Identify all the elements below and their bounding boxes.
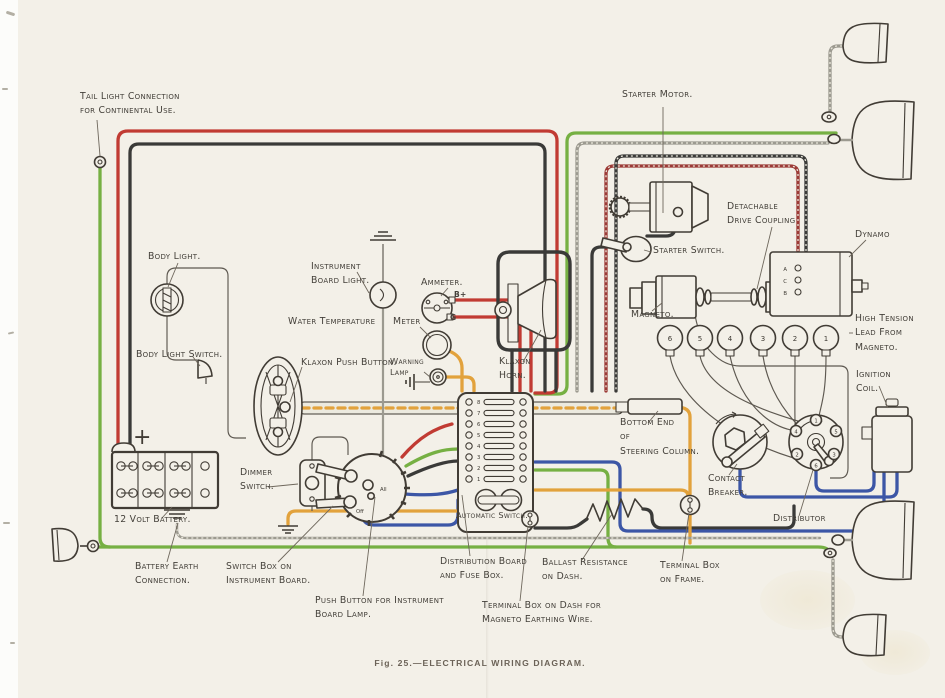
figure-caption: Fig. 25.—ELECTRICAL WIRING DIAGRAM. xyxy=(300,658,660,668)
dynamo-terminal-c: C xyxy=(783,279,787,285)
label-starter-switch: Starter Switch. xyxy=(653,244,725,258)
plug-number: 5 xyxy=(698,335,702,343)
headlamp-top-small xyxy=(843,23,888,63)
label-starter-motor: Starter Motor. xyxy=(622,88,693,102)
label-ballast-resistance: Ballast Resistance on Dash. xyxy=(542,556,628,585)
label-distributor: Distributor xyxy=(773,512,826,526)
headlamp-bottom-small xyxy=(843,614,886,655)
label-switch-box: Switch Box on Instrument Board. xyxy=(226,560,310,589)
fuse-number: 1 xyxy=(477,477,480,483)
label-ignition-coil: Ignition Coil. xyxy=(856,368,891,397)
body-light-switch xyxy=(198,360,212,384)
label-contact-breaker: Contact Breaker. xyxy=(708,472,748,501)
dynamo-terminal-a: A xyxy=(783,267,787,273)
label-meter: Meter xyxy=(393,315,421,329)
distributor-terminal: 1 xyxy=(814,419,817,425)
steering-wheel xyxy=(254,357,302,455)
distributor: 1 5 3 6 2 4 xyxy=(789,415,843,471)
body-light xyxy=(151,284,183,316)
plug-number: 6 xyxy=(668,335,673,343)
label-terminal-box-frame: Terminal Box on Frame. xyxy=(660,559,720,588)
label-ammeter-terminal-g: G xyxy=(450,312,456,324)
distributor-terminal: 2 xyxy=(795,453,798,459)
switch-box: All Off xyxy=(316,451,410,526)
label-bottom-end-steering-column: Bottom End of Steering Column. xyxy=(620,416,699,459)
starter-switch xyxy=(601,237,651,262)
label-push-button: Push Button for Instrument Board Lamp. xyxy=(315,594,444,623)
warning-lamp xyxy=(430,369,446,385)
distributor-terminal: 5 xyxy=(834,430,837,436)
label-detachable-drive-coupling: Detachable Drive Coupling xyxy=(727,200,795,229)
label-warning-lamp: Warning Lamp xyxy=(390,356,424,378)
distributor-terminal: 3 xyxy=(832,453,835,459)
tail-lamp-left xyxy=(52,529,99,562)
dynamo-terminal-b: B xyxy=(783,291,787,297)
label-automatic-switch: Automatic Switch. xyxy=(456,509,528,522)
switch-box-mark-off: Off xyxy=(356,509,364,515)
steering-column-bottom-end xyxy=(616,399,682,414)
label-ammeter-terminal-b: B+ xyxy=(454,289,467,301)
terminal-box-on-frame xyxy=(681,496,700,515)
water-temperature-meter xyxy=(423,331,451,359)
label-battery: 12 Volt Battery. xyxy=(114,513,191,527)
ignition-coil xyxy=(862,399,912,472)
label-body-light-switch: Body Light Switch. xyxy=(136,348,223,362)
label-klaxon-horn: Klaxon Horn. xyxy=(499,355,531,384)
plug-number: 4 xyxy=(728,335,733,343)
dynamo: A C B xyxy=(766,252,868,316)
plug-number: 2 xyxy=(793,335,797,343)
tail-light-connector xyxy=(95,157,106,168)
switch-box-mark-all: All xyxy=(380,487,387,493)
plug-number: 1 xyxy=(824,335,828,343)
headlamp-bottom-large xyxy=(824,501,914,579)
headlamp-top-large xyxy=(822,101,914,179)
plug-number: 3 xyxy=(761,335,765,343)
battery-plus-sign: + xyxy=(133,425,151,450)
fuse-number: 3 xyxy=(477,455,480,461)
label-terminal-box-dash: Terminal Box on Dash for Magneto Earthin… xyxy=(482,599,601,628)
label-body-light: Body Light. xyxy=(148,250,201,264)
label-water-temperature: Water Temperature xyxy=(288,315,375,329)
detachable-drive-coupling xyxy=(696,287,766,307)
label-magneto: Magneto. xyxy=(631,308,674,322)
instrument-board-light xyxy=(370,282,396,308)
label-dynamo: Dynamo xyxy=(855,228,890,242)
label-battery-earth: Battery Earth Connection. xyxy=(135,560,199,589)
label-instrument-board-light: Instrument Board Light. xyxy=(311,260,370,289)
scanned-page: A C B 6 5 4 3 2 1 xyxy=(0,0,945,698)
klaxon-horn xyxy=(495,280,556,343)
klaxon-push-button-knob xyxy=(280,402,290,412)
label-high-tension-lead: High Tension Lead From Magneto. xyxy=(855,312,914,355)
spark-plugs: 6 5 4 3 2 1 xyxy=(658,326,839,357)
fuse-number: 2 xyxy=(477,466,480,472)
label-dimmer-switch: Dimmer Switch. xyxy=(240,466,274,495)
label-tail-light-connection: Tail Light Connection for Continental Us… xyxy=(80,90,180,119)
battery: + xyxy=(112,425,218,508)
contact-breaker xyxy=(713,412,769,469)
fuse-number: 5 xyxy=(477,433,480,439)
ballast-resistance xyxy=(586,499,643,521)
label-distribution-board: Distribution Board and Fuse Box. xyxy=(440,555,527,584)
fuse-number: 7 xyxy=(477,411,480,417)
starter-motor xyxy=(610,182,708,232)
label-klaxon-push-button: Klaxon Push Button. xyxy=(301,356,397,370)
